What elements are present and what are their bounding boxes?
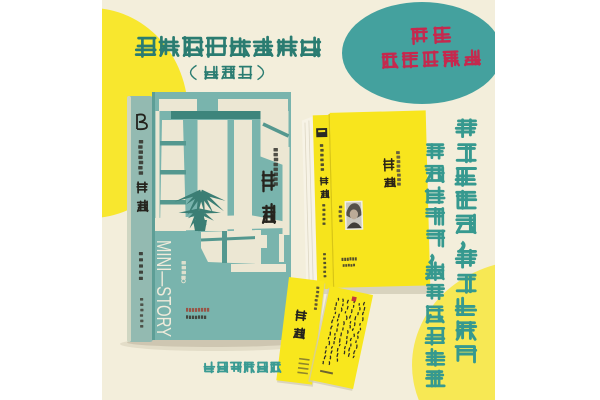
svg-text:MINI—STORY: MINI—STORY (152, 240, 174, 337)
